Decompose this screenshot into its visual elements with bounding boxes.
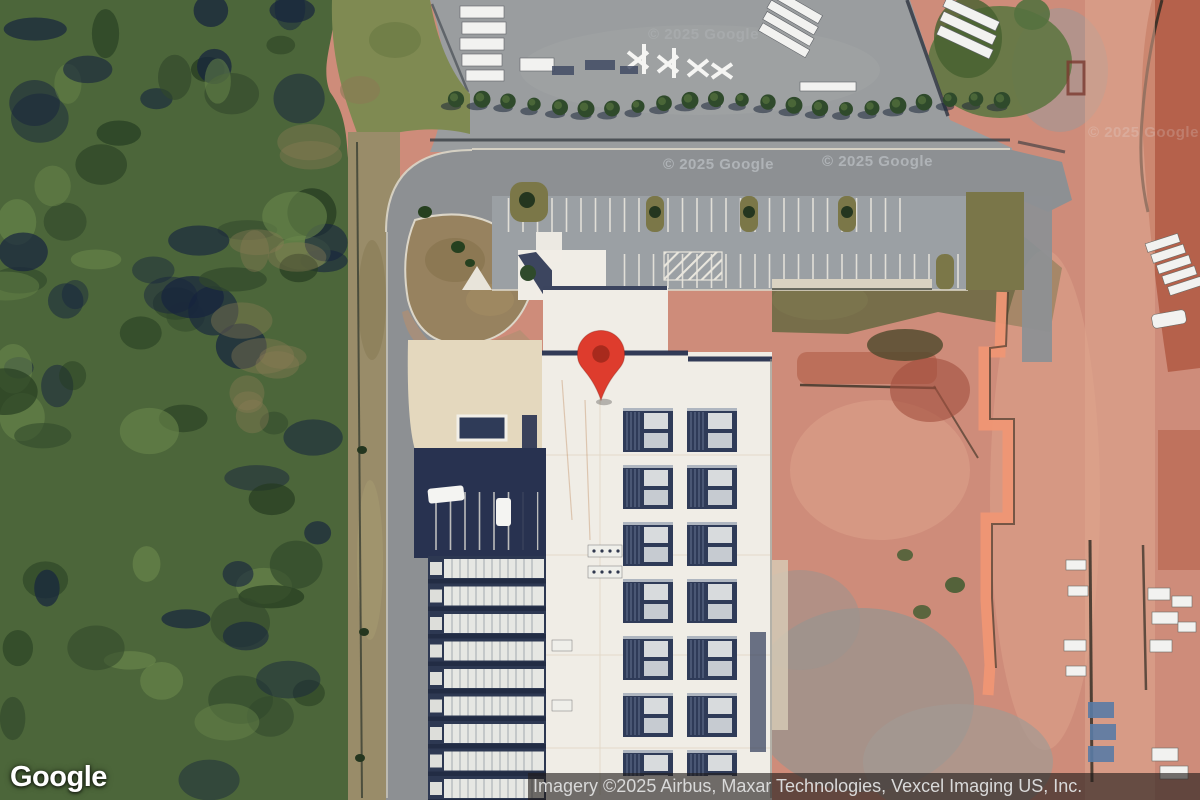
chiller-rows: [428, 556, 546, 800]
attribution-text: Imagery ©2025 Airbus, Maxar Technologies…: [533, 776, 1082, 796]
blue-pallets: [1088, 702, 1116, 762]
chiller-yard: [408, 340, 546, 800]
map-canvas: [0, 0, 1200, 800]
parked-car: [496, 498, 511, 526]
forest-area: [0, 0, 374, 800]
satellite-map[interactable]: © 2025 Google © 2025 Google © 2025 Googl…: [0, 0, 1200, 800]
rooftop-hvac-units: [620, 404, 750, 776]
google-logo[interactable]: Google: [10, 761, 107, 794]
imagery-attribution: Imagery ©2025 Airbus, Maxar Technologies…: [528, 773, 1200, 800]
